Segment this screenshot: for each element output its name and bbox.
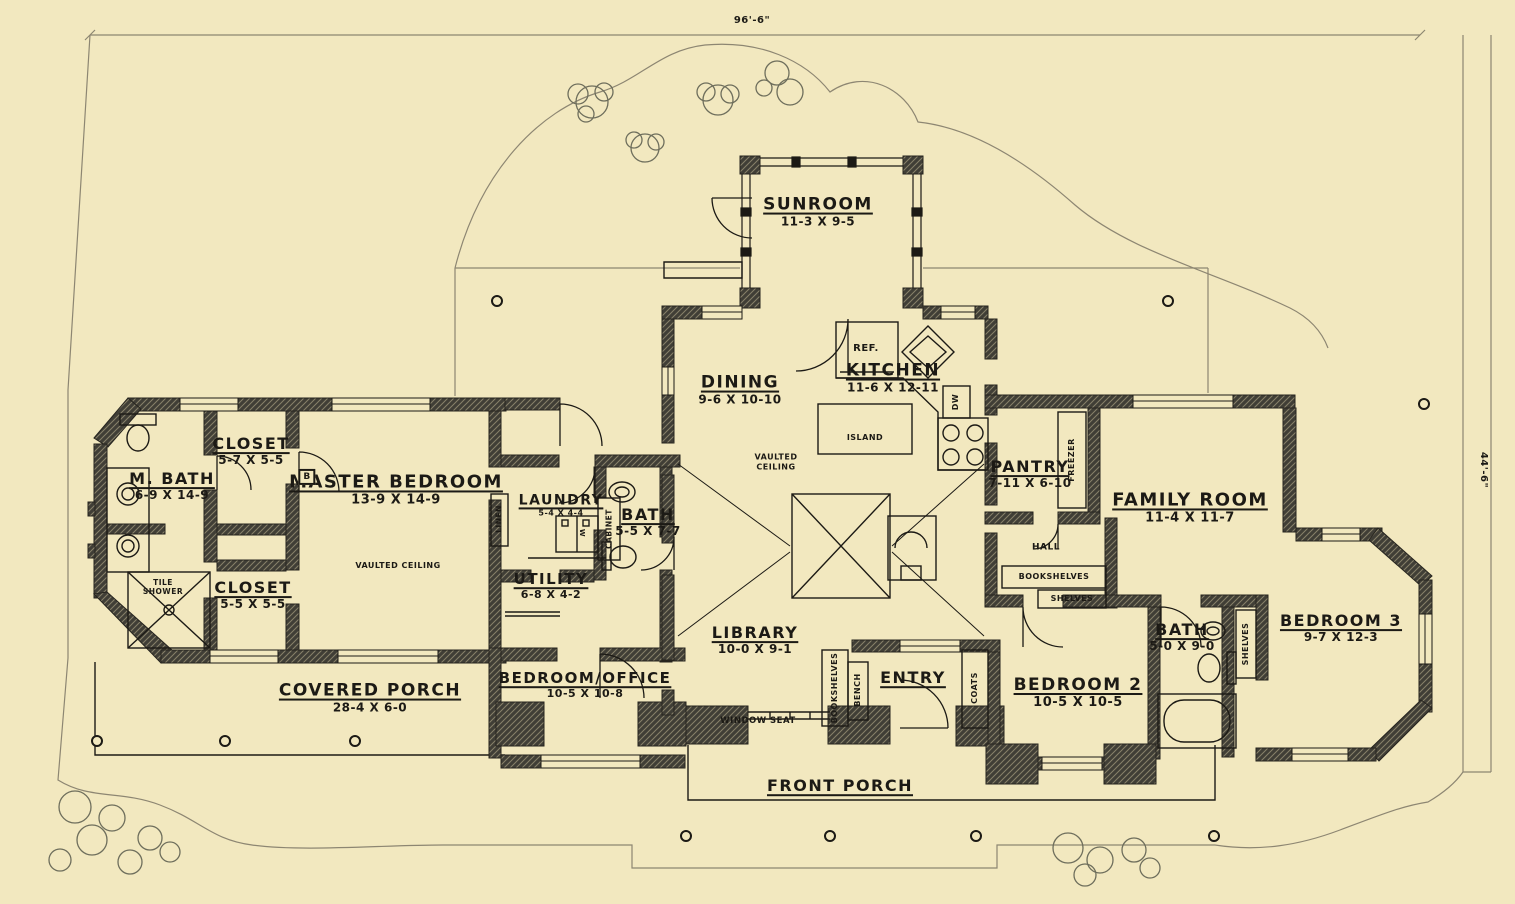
walls bbox=[88, 156, 1432, 784]
plan-drawing bbox=[0, 0, 1515, 904]
sunroom-glazing bbox=[741, 157, 922, 288]
floor-plan: SUNROOM11-3 X 9-5DINING9-6 X 10-10KITCHE… bbox=[0, 0, 1515, 904]
windows bbox=[180, 306, 1432, 770]
site-lines bbox=[58, 30, 1491, 868]
ceiling-lines bbox=[678, 464, 984, 636]
